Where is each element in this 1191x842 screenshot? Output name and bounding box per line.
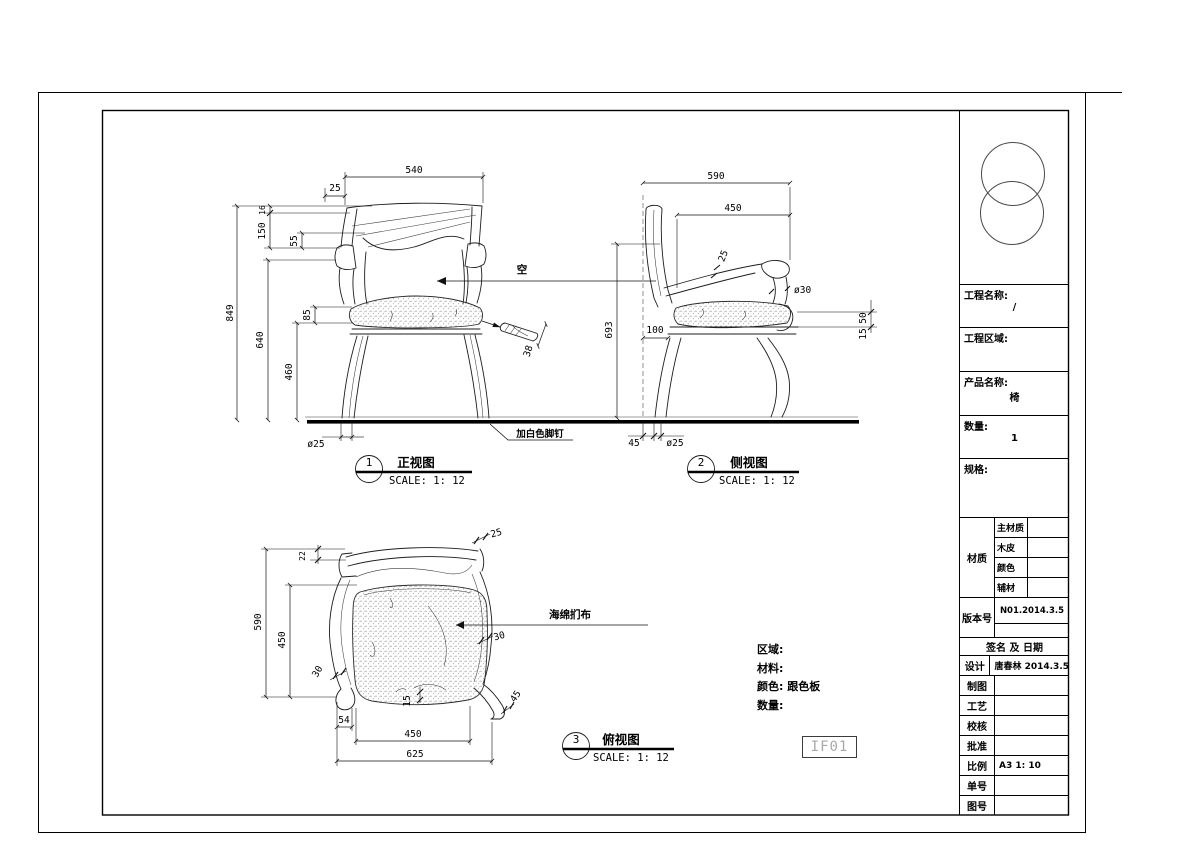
tv-dim-15: 15 (402, 695, 413, 706)
sv-dim-50: 50 (858, 312, 869, 324)
quantity-value: 1 (960, 433, 1069, 444)
sv-dim-leg: ø25 (666, 438, 683, 449)
fv-dim-849: 849 (225, 304, 236, 321)
sv-title: 侧视图 (730, 455, 768, 470)
logo-box (960, 110, 1069, 284)
tv-title: 俯视图 (602, 732, 640, 747)
sv-dim-450: 450 (724, 203, 741, 214)
sign-row-label: 制图 (960, 676, 995, 695)
spec-label: 规格: (960, 459, 1069, 476)
project-name-value: / (960, 302, 1069, 313)
material-row-label: 木皮 (995, 538, 1028, 557)
sv-dim-590: 590 (707, 171, 724, 182)
sign-row-value: A3 1: 10 (995, 756, 1069, 775)
sign-row-value (995, 736, 1069, 755)
quantity-label: 数量: (960, 416, 1069, 433)
sv-dim-45: 45 (628, 438, 639, 449)
quantity-row: 数量: 1 (960, 415, 1069, 458)
top-view-drawing (329, 548, 504, 719)
side-view-drawing (643, 195, 798, 418)
tv-dim-30r: 30 (492, 630, 506, 644)
title-block: 工程名称: / 工程区域: 产品名称: 椅 数量: 1 规格: 材质 主材质 木… (959, 110, 1069, 815)
sign-row-label: 单号 (960, 776, 995, 795)
sign-row-value (995, 696, 1069, 715)
product-name-row: 产品名称: 椅 (960, 371, 1069, 415)
sign-row-design: 设计唐春林 2014.3.5 (960, 655, 1069, 675)
sign-row-craft: 工艺 (960, 695, 1069, 715)
sv-dim-25: 25 (716, 249, 730, 264)
fv-dim-25: 25 (329, 183, 340, 194)
fv-scale: SCALE: 1: 12 (389, 475, 465, 487)
fv-label-hollow: 空 (517, 263, 528, 276)
fv-dim-540: 540 (405, 165, 422, 176)
sv-badge: 2 (698, 456, 705, 469)
product-name-label: 产品名称: (960, 372, 1069, 389)
material-row: 颜色 (995, 558, 1069, 578)
material-row: 主材质 (995, 518, 1069, 538)
drawing-code-box: IF01 (802, 736, 857, 758)
fv-dim-150: 150 (257, 222, 268, 239)
spec-row: 规格: (960, 458, 1069, 517)
fv-dim-55: 55 (289, 235, 300, 246)
material-row-label: 辅材 (995, 578, 1028, 597)
product-name-value: 椅 (960, 389, 1069, 404)
tv-label-cushion: 海绵扪布 (549, 608, 591, 621)
sign-header-row: 签名 及 日期 (960, 637, 1069, 655)
sv-dim-693: 693 (604, 321, 615, 338)
ground-line (305, 417, 859, 424)
project-name-row: 工程名称: / (960, 284, 1069, 327)
material-row-label: 颜色 (995, 558, 1028, 577)
sign-row-label: 工艺 (960, 696, 995, 715)
material-row: 辅材 (995, 578, 1069, 597)
tv-scale: SCALE: 1: 12 (593, 752, 669, 764)
fv-label-footnail: 加白色脚钉 (515, 428, 564, 440)
material-row: 木皮 (995, 538, 1069, 558)
sign-row-order: 单号 (960, 775, 1069, 795)
fv-dim-38: 38 (522, 344, 536, 359)
sv-dim-15: 15 (858, 328, 869, 339)
sign-row-value (995, 796, 1069, 815)
tv-dim-25: 25 (489, 527, 503, 541)
sv-dim-100: 100 (646, 325, 663, 336)
sign-row-value: 唐春林 2014.3.5 (990, 656, 1069, 675)
tv-dim-590: 590 (253, 613, 264, 630)
sign-row-drawingno: 图号 (960, 795, 1069, 815)
sign-row-draft: 制图 (960, 675, 1069, 695)
front-view-drawing (335, 203, 538, 418)
sign-row-label: 比例 (960, 756, 995, 775)
tv-dim-54: 54 (338, 715, 350, 726)
material-section: 材质 主材质 木皮 颜色 辅材 (960, 517, 1069, 597)
sign-row-label: 校核 (960, 716, 995, 735)
note-quantity: 数量: (757, 697, 820, 716)
note-material: 材料: (757, 660, 820, 679)
notes-block: 区域: 材料: 颜色: 跟色板 数量: (757, 641, 820, 715)
fv-dim-16: 16 (258, 205, 267, 215)
material-row-label: 主材质 (995, 518, 1028, 537)
sign-row-check: 校核 (960, 715, 1069, 735)
tv-dim-30l: 30 (310, 664, 325, 680)
sv-dim-30: ø30 (794, 285, 811, 296)
fv-dim-460: 460 (284, 363, 295, 380)
tv-badge: 3 (573, 733, 580, 746)
version-value: N01.2014.3.5 (995, 598, 1069, 624)
sign-row-approve: 批准 (960, 735, 1069, 755)
note-color: 颜色: 跟色板 (757, 678, 820, 697)
fv-dim-85: 85 (302, 309, 313, 320)
version-section: 版本号 N01.2014.3.5 (960, 597, 1069, 637)
project-area-row: 工程区域: (960, 327, 1069, 371)
tv-dim-625: 625 (406, 749, 423, 760)
fv-badge: 1 (366, 456, 373, 469)
drawing-sheet: 540 25 849 16 150 55 640 460 85 ø25 38 (0, 0, 1191, 842)
sign-row-scale: 比例A3 1: 10 (960, 755, 1069, 775)
sign-row-label: 图号 (960, 796, 995, 815)
project-area-label: 工程区域: (960, 328, 1069, 345)
sv-scale: SCALE: 1: 12 (719, 475, 795, 487)
sign-row-value (995, 716, 1069, 735)
logo-circle-bottom (980, 181, 1044, 245)
sign-row-value (995, 776, 1069, 795)
version-empty (995, 624, 1069, 637)
tv-dim-450b: 450 (404, 729, 421, 740)
tv-dim-22: 22 (298, 551, 307, 561)
tv-dim-45: 45 (508, 689, 524, 705)
fv-title: 正视图 (397, 455, 435, 470)
sign-row-label: 设计 (960, 656, 990, 675)
sign-row-value (995, 676, 1069, 695)
version-label: 版本号 (960, 598, 995, 637)
material-label: 材质 (960, 518, 995, 597)
tv-dim-450l: 450 (277, 631, 288, 648)
sign-row-label: 批准 (960, 736, 995, 755)
note-area: 区域: (757, 641, 820, 660)
fv-dim-640: 640 (255, 331, 266, 348)
sign-header: 签名 及 日期 (960, 638, 1069, 655)
fv-dim-leg: ø25 (307, 439, 324, 450)
project-name-label: 工程名称: (960, 285, 1069, 302)
